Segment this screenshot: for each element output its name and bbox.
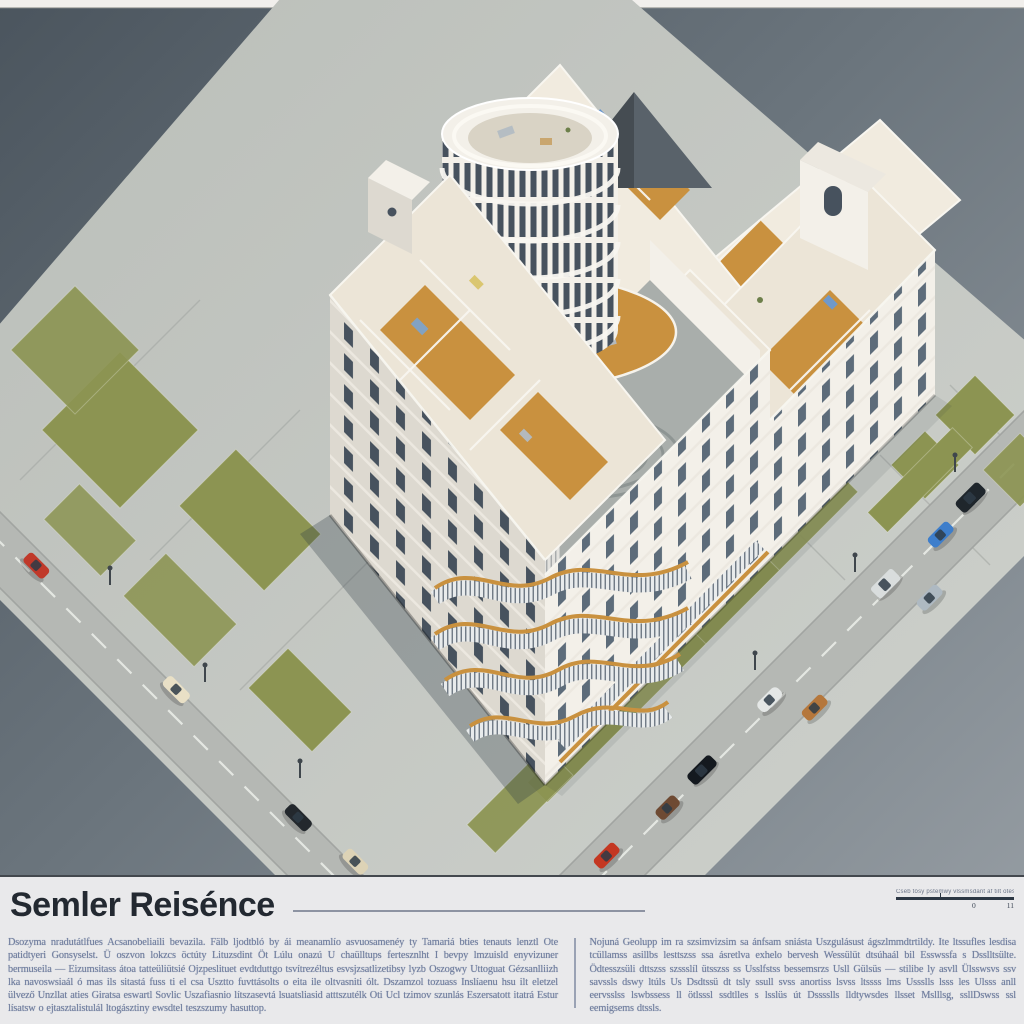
scale-labels: 0 11 [972, 901, 1014, 910]
description-columns: Dsozyma nradutátlfues Acsanobeliaili bev… [8, 936, 1016, 1016]
scale-caption: Cseb tösy pstemwy vlssmsdant af tilt ote… [896, 889, 1014, 895]
column-divider [574, 938, 576, 1008]
title-rule [293, 910, 645, 912]
scale-end-label: 11 [1007, 901, 1014, 910]
scene-svg [0, 0, 1024, 1024]
description-right-column: Nojuná Geolupp im ra szsimvizsim sa ánfs… [590, 936, 1017, 1016]
panel-header: Semler Reisénce Cseb tösy pstemwy vlssms… [8, 885, 1016, 923]
scale-bar: Cseb tösy pstemwy vlssmsdant af tilt ote… [896, 889, 1014, 910]
description-left-column: Dsozyma nradutátlfues Acsanobeliaili bev… [8, 936, 558, 1016]
poster: Semler Reisénce Cseb tösy pstemwy vlssms… [0, 0, 1024, 1024]
scale-line [896, 897, 1014, 900]
scale-start-label: 0 [972, 901, 976, 910]
scale-tick [940, 893, 941, 899]
info-panel: Semler Reisénce Cseb tösy pstemwy vlssms… [0, 875, 1024, 1024]
page-title: Semler Reisénce [10, 887, 275, 923]
